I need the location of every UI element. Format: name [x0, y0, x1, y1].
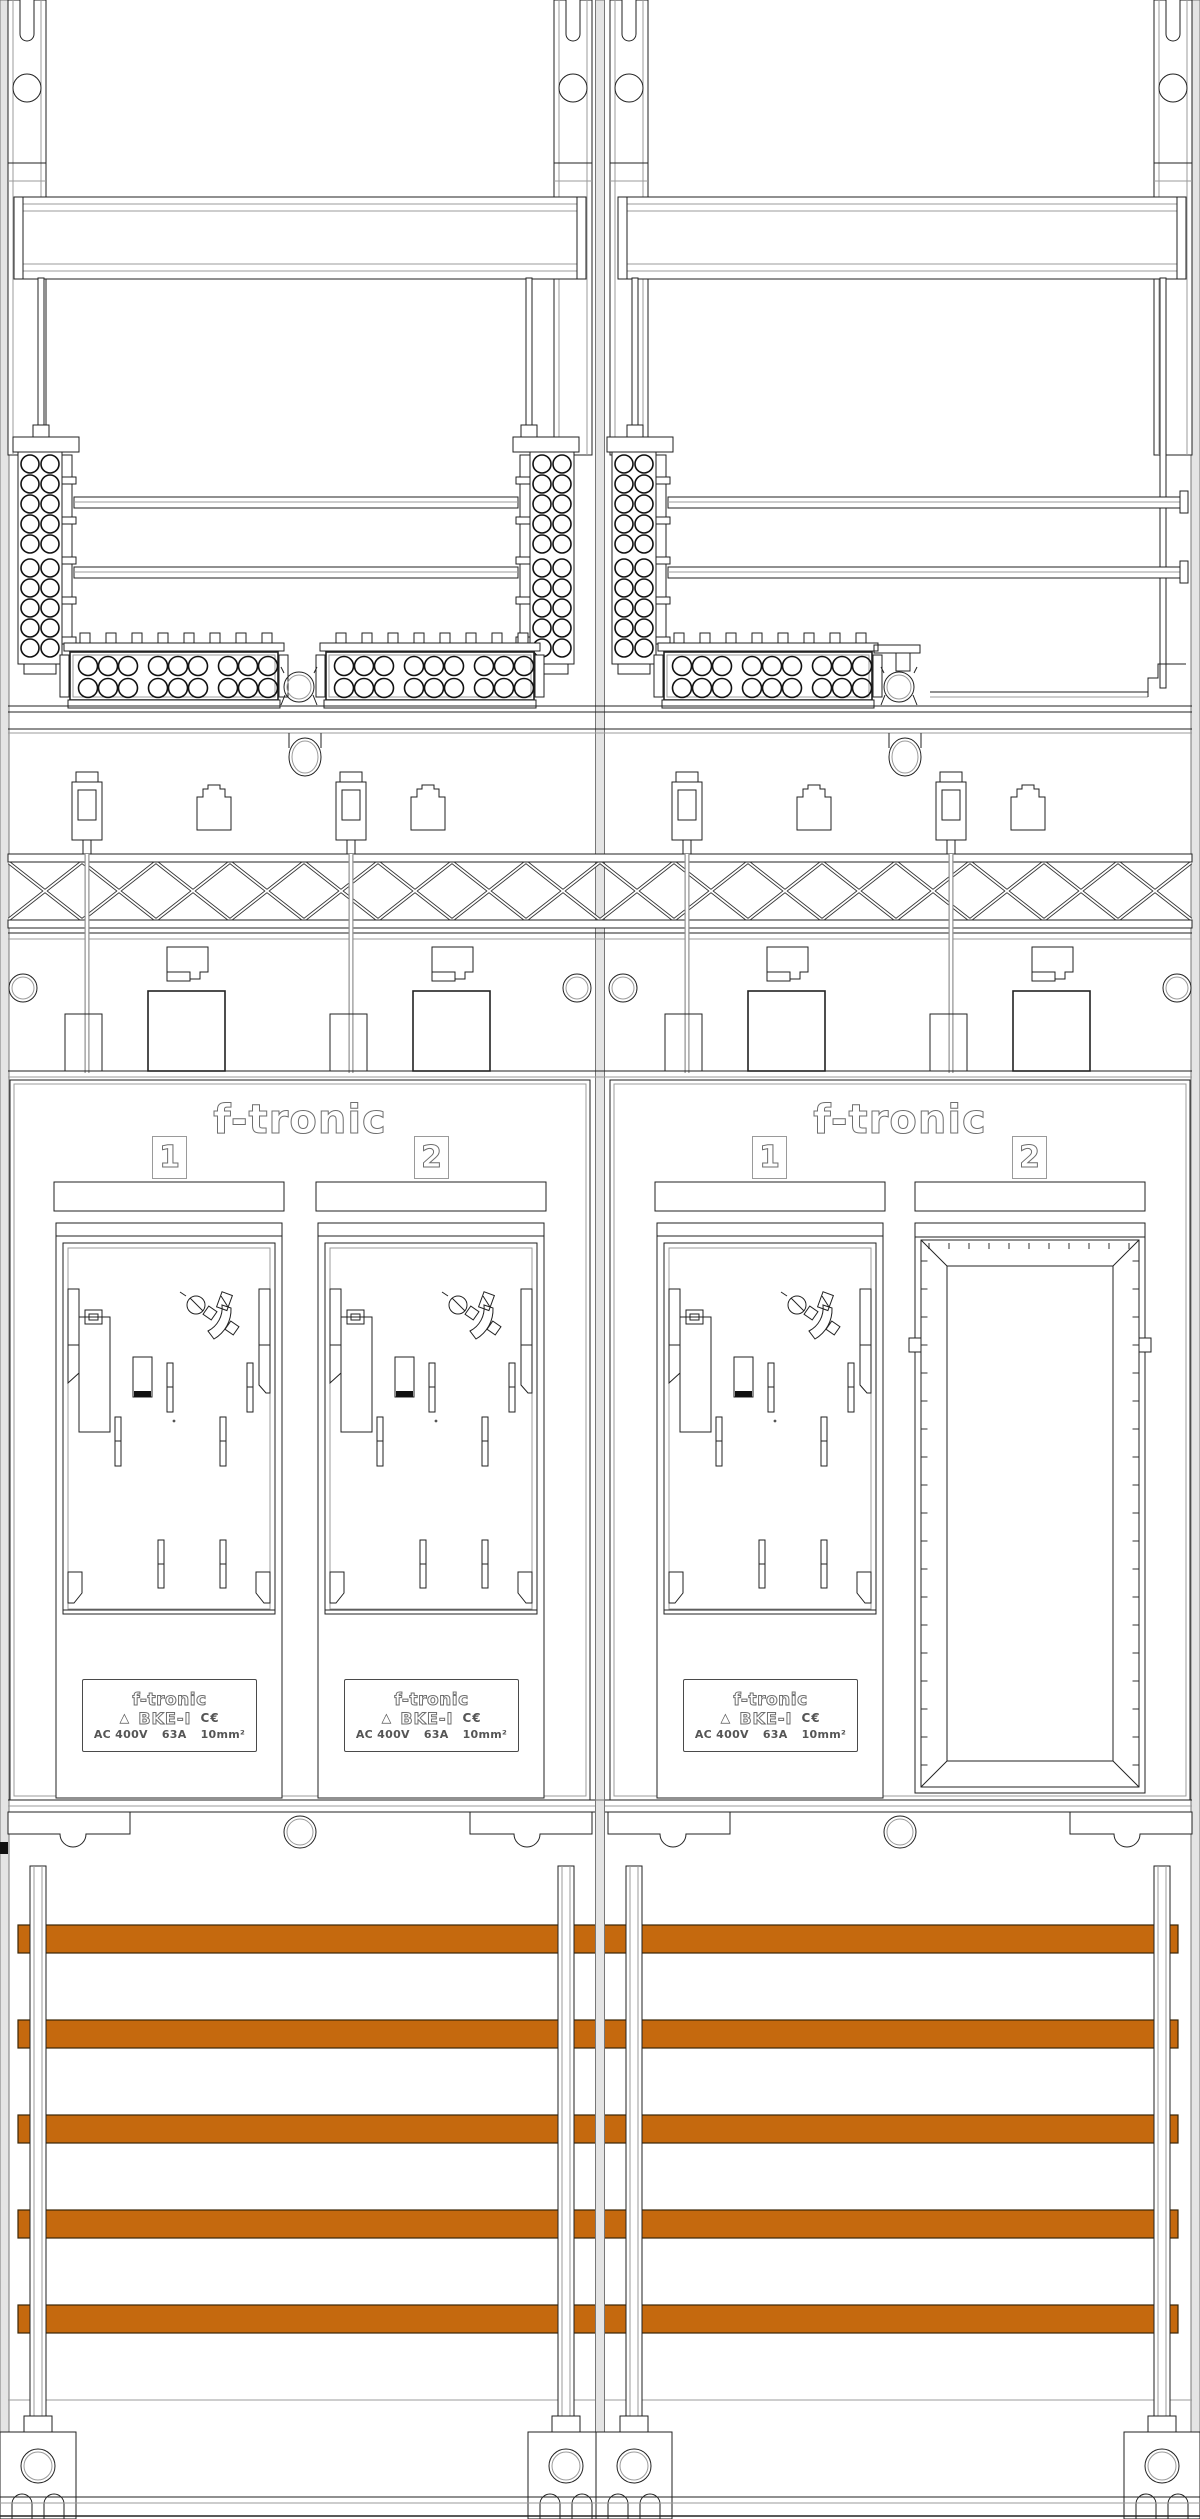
slot-number-badge-left-2: 2: [414, 1136, 449, 1179]
label-current: 63A: [162, 1728, 187, 1741]
meter-rating-label-1: f-tronic △ BKE-I C€ AC 400V 63A 10mm²: [82, 1679, 257, 1752]
label-cross-section: 10mm²: [201, 1728, 246, 1741]
vde-triangle-icon: △: [720, 1712, 730, 1725]
slot-number: 2: [1019, 1140, 1040, 1175]
label-brand: f-tronic: [733, 1691, 807, 1709]
slot-number: 2: [421, 1140, 442, 1175]
cad-linework: [0, 0, 1200, 2519]
ce-mark: C€: [801, 1710, 820, 1727]
label-cross-section: 10mm²: [463, 1728, 508, 1741]
empty-slot-frame: [909, 1223, 1151, 1793]
brand-logo-left: f-tronic: [150, 1097, 450, 1143]
label-cross-section: 10mm²: [802, 1728, 847, 1741]
terminal-block-c: [654, 633, 882, 708]
ce-mark: C€: [462, 1710, 481, 1727]
meter-rating-label-2: f-tronic △ BKE-I C€ AC 400V 63A 10mm²: [344, 1679, 519, 1752]
vde-triangle-icon: △: [381, 1712, 391, 1725]
meter-rating-label-3: f-tronic △ BKE-I C€ AC 400V 63A 10mm²: [683, 1679, 858, 1752]
label-voltage: AC 400V: [94, 1728, 148, 1741]
terminal-strip-1: [13, 437, 79, 674]
slot-number-badge-right-2: 2: [1012, 1136, 1047, 1179]
slot-number: 1: [759, 1140, 780, 1175]
label-model: BKE-I: [400, 1710, 453, 1727]
slot-number-badge-left-1: 1: [152, 1136, 187, 1179]
label-current: 63A: [424, 1728, 449, 1741]
label-voltage: AC 400V: [695, 1728, 749, 1741]
label-voltage: AC 400V: [356, 1728, 410, 1741]
slot-number-badge-right-1: 1: [752, 1136, 787, 1179]
slot-number: 1: [159, 1140, 180, 1175]
empty-shelf: [874, 645, 1186, 697]
cabinet-drawing: f-tronic f-tronic 1 2 1 2 f-tronic △ BKE…: [0, 0, 1200, 2519]
label-model: BKE-I: [138, 1710, 191, 1727]
vde-triangle-icon: △: [119, 1712, 129, 1725]
label-brand: f-tronic: [394, 1691, 468, 1709]
ce-mark: C€: [200, 1710, 219, 1727]
label-model: BKE-I: [739, 1710, 792, 1727]
terminal-strip-3: [607, 437, 673, 674]
label-current: 63A: [763, 1728, 788, 1741]
label-brand: f-tronic: [132, 1691, 206, 1709]
truss-band: [8, 854, 1192, 939]
terminal-block-b: [316, 633, 544, 708]
comm-jacks: [72, 772, 1045, 854]
brand-logo-right: f-tronic: [750, 1097, 1050, 1143]
divider-rail-lower: [596, 1800, 605, 2519]
terminal-block-a: [60, 633, 288, 708]
